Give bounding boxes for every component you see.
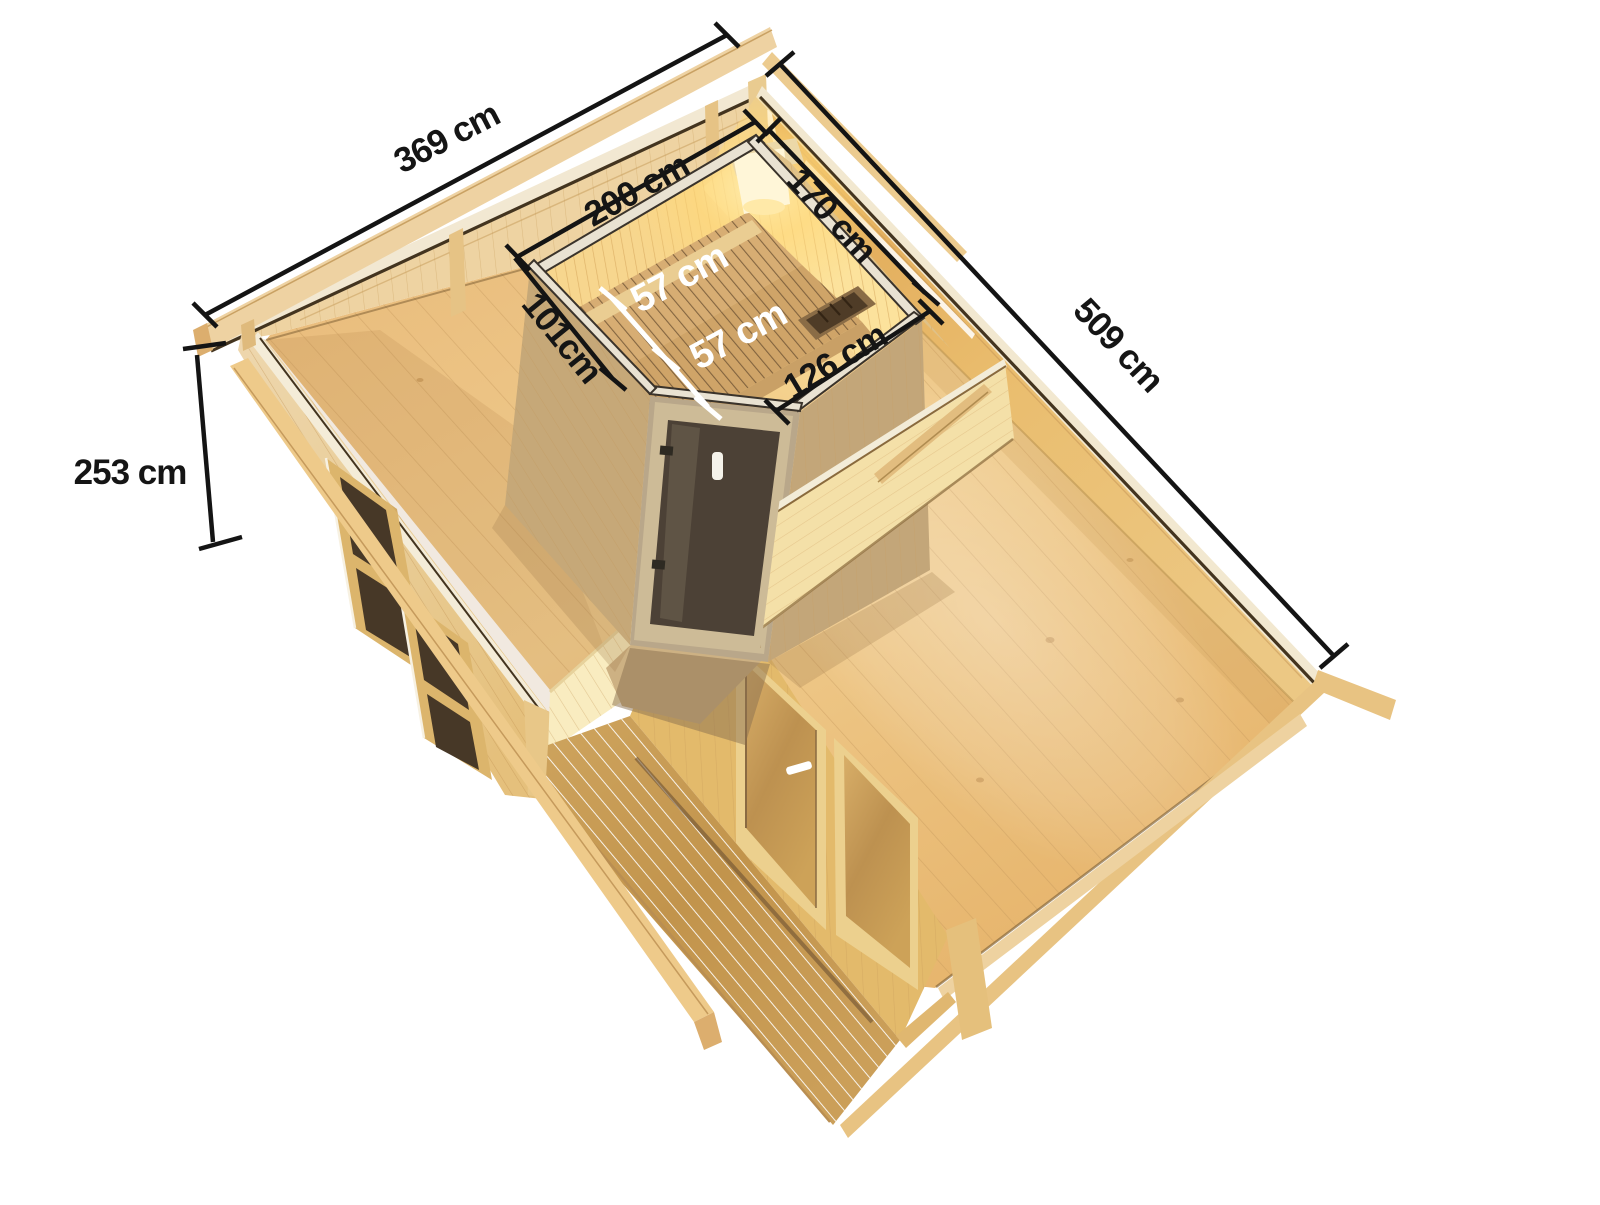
svg-text:253 cm: 253 cm (74, 453, 187, 492)
